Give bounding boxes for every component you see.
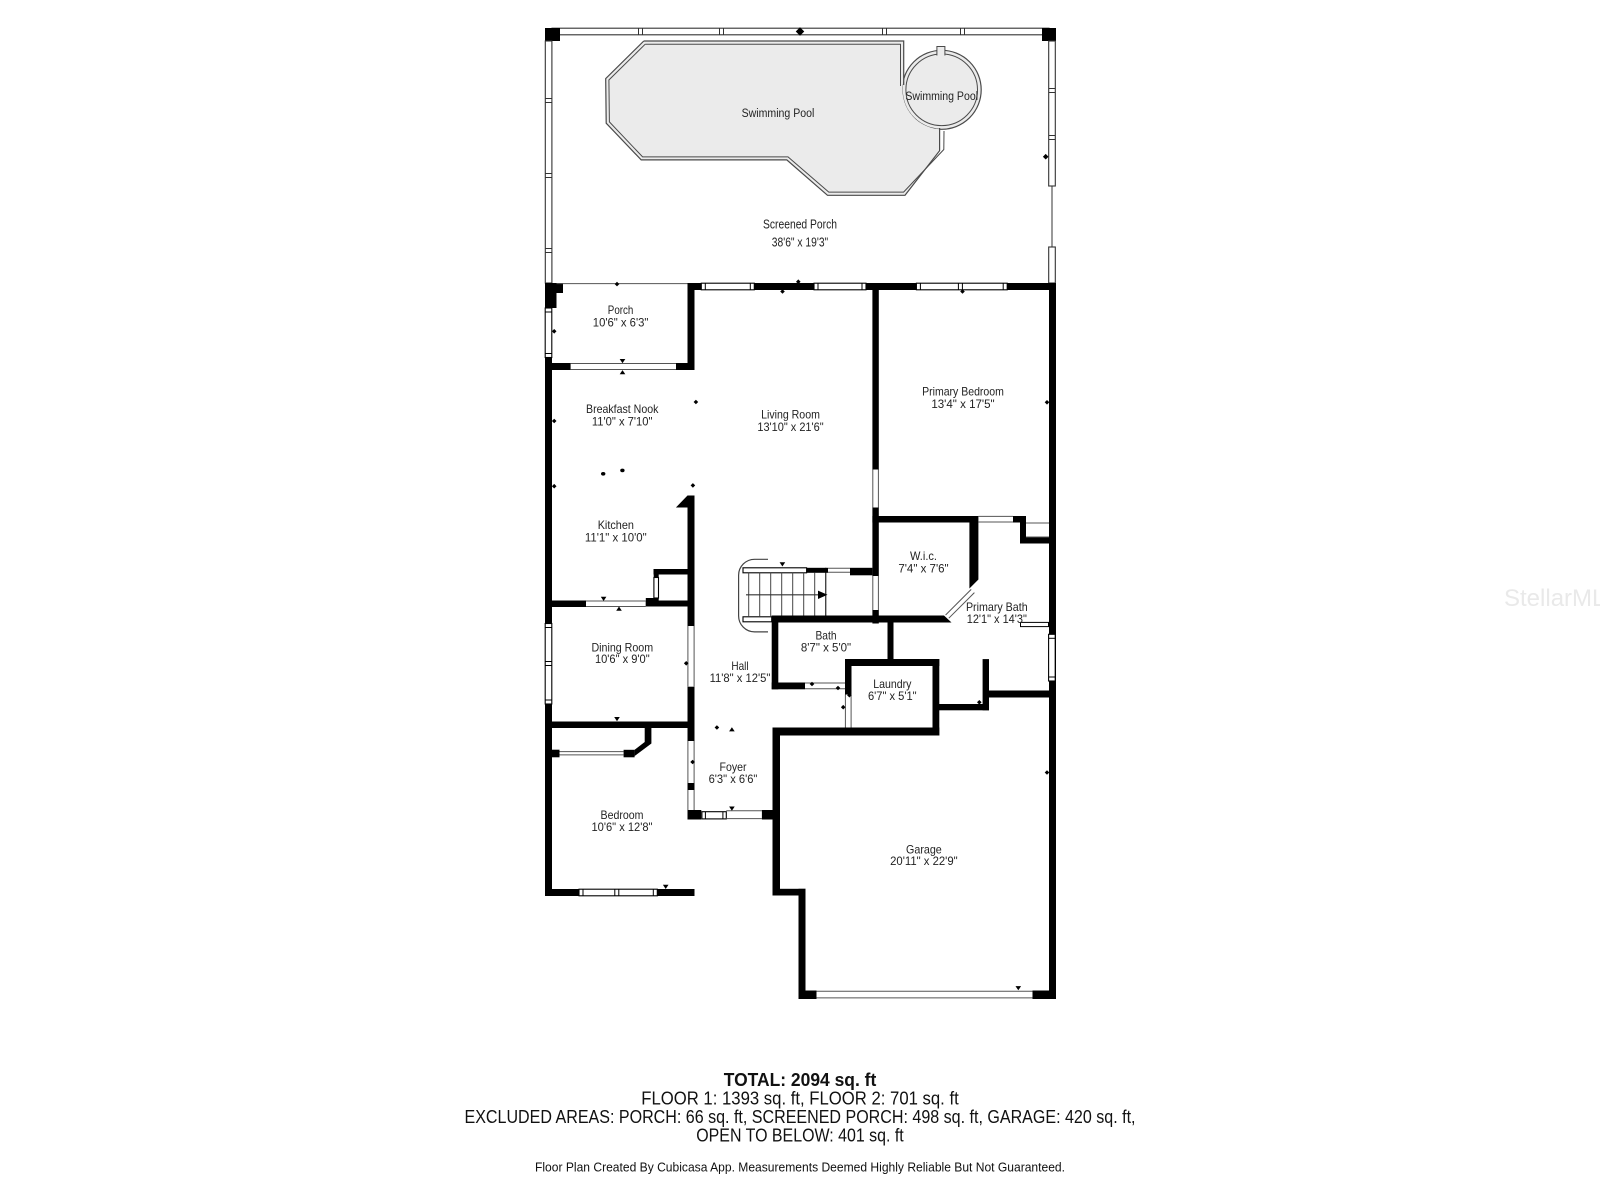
svg-text:8'7" x 5'0": 8'7" x 5'0" (801, 642, 851, 655)
svg-text:13'10" x 21'6": 13'10" x 21'6" (757, 421, 823, 434)
svg-text:12'1" x 14'3": 12'1" x 14'3" (967, 613, 1027, 626)
svg-text:Screened Porch: Screened Porch (763, 217, 837, 232)
svg-text:Porch: Porch (608, 304, 634, 317)
svg-text:6'7" x 5'1": 6'7" x 5'1" (868, 690, 917, 703)
svg-text:6'3" x 6'6": 6'3" x 6'6" (709, 773, 758, 786)
svg-text:FLOOR 1: 1393 sq. ft, FLOOR 2:: FLOOR 1: 1393 sq. ft, FLOOR 2: 701 sq. f… (641, 1089, 959, 1109)
svg-text:10'6" x 6'3": 10'6" x 6'3" (593, 317, 649, 330)
svg-text:38'6" x 19'3": 38'6" x 19'3" (772, 235, 829, 250)
svg-text:Swimming Pool: Swimming Pool (905, 91, 978, 103)
svg-text:Breakfast Nook: Breakfast Nook (586, 403, 659, 416)
svg-text:11'8" x 12'5": 11'8" x 12'5" (710, 672, 771, 685)
svg-text:11'0" x 7'10": 11'0" x 7'10" (592, 416, 653, 429)
svg-text:StellarMLS: StellarMLS (1504, 585, 1600, 612)
svg-text:W.i.c.: W.i.c. (910, 550, 937, 563)
svg-text:TOTAL: 2094 sq. ft: TOTAL: 2094 sq. ft (724, 1070, 877, 1090)
svg-text:Swimming Pool: Swimming Pool (742, 108, 815, 120)
svg-text:Primary Bedroom: Primary Bedroom (922, 386, 1004, 399)
svg-text:Kitchen: Kitchen (598, 519, 634, 532)
svg-text:EXCLUDED AREAS: PORCH: 66 sq.: EXCLUDED AREAS: PORCH: 66 sq. ft, SCREEN… (465, 1107, 1136, 1127)
svg-text:OPEN TO BELOW: 401 sq. ft: OPEN TO BELOW: 401 sq. ft (696, 1126, 904, 1146)
svg-text:7'4" x 7'6": 7'4" x 7'6" (898, 563, 948, 576)
svg-text:11'1" x 10'0": 11'1" x 10'0" (585, 532, 647, 545)
svg-text:13'4" x 17'5": 13'4" x 17'5" (931, 398, 994, 411)
svg-text:20'11" x 22'9": 20'11" x 22'9" (890, 855, 958, 868)
svg-text:10'6" x 12'8": 10'6" x 12'8" (592, 821, 653, 834)
svg-text:10'6" x 9'0": 10'6" x 9'0" (595, 653, 650, 666)
svg-text:Floor Plan Created By Cubicasa: Floor Plan Created By Cubicasa App. Meas… (535, 1160, 1065, 1175)
svg-text:Living Room: Living Room (761, 409, 820, 422)
